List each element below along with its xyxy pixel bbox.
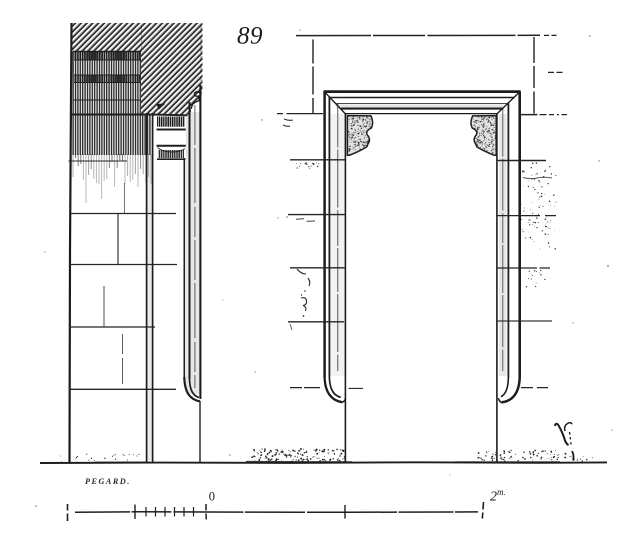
svg-text:89: 89 — [237, 23, 263, 50]
svg-text:0: 0 — [209, 490, 215, 504]
svg-text:PEGARD.: PEGARD. — [85, 477, 131, 486]
svg-text:2m.: 2m. — [490, 487, 506, 505]
